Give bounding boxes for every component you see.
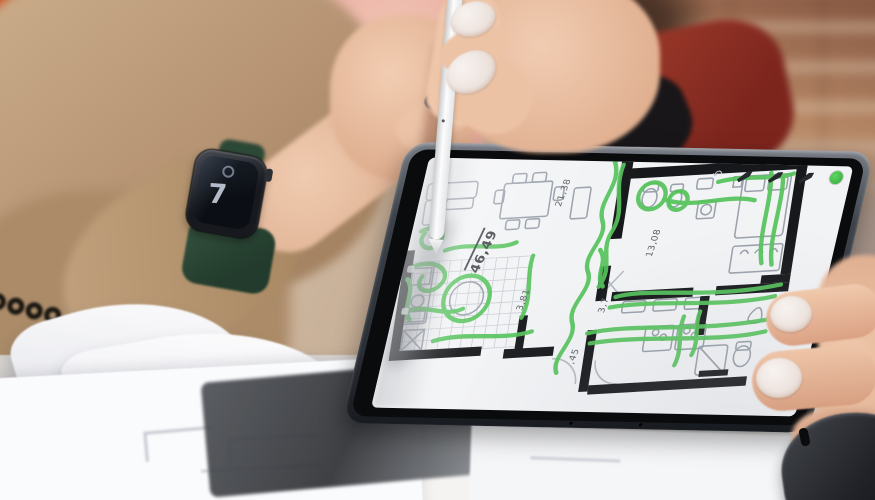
print-line	[530, 456, 620, 462]
pencil-tool-icon[interactable]	[797, 168, 817, 184]
stylus-mark	[442, 119, 445, 122]
watch-crown[interactable]	[264, 168, 273, 182]
photo-scene: 7	[0, 0, 875, 500]
watch-screen[interactable]: 7	[191, 154, 260, 231]
chain-link-icon	[24, 300, 45, 321]
drawing-toolbar: ↶	[711, 167, 845, 186]
smartwatch: 7	[159, 136, 315, 316]
undo-icon[interactable]: ↶	[711, 169, 724, 181]
watch-hour-digit: 7	[207, 179, 228, 211]
marker-tool-icon[interactable]	[766, 168, 786, 184]
chain-link-icon	[5, 296, 26, 317]
paper-sheet	[469, 424, 802, 500]
activity-ring-icon	[221, 165, 235, 179]
pen-tool-icon[interactable]	[735, 167, 755, 183]
